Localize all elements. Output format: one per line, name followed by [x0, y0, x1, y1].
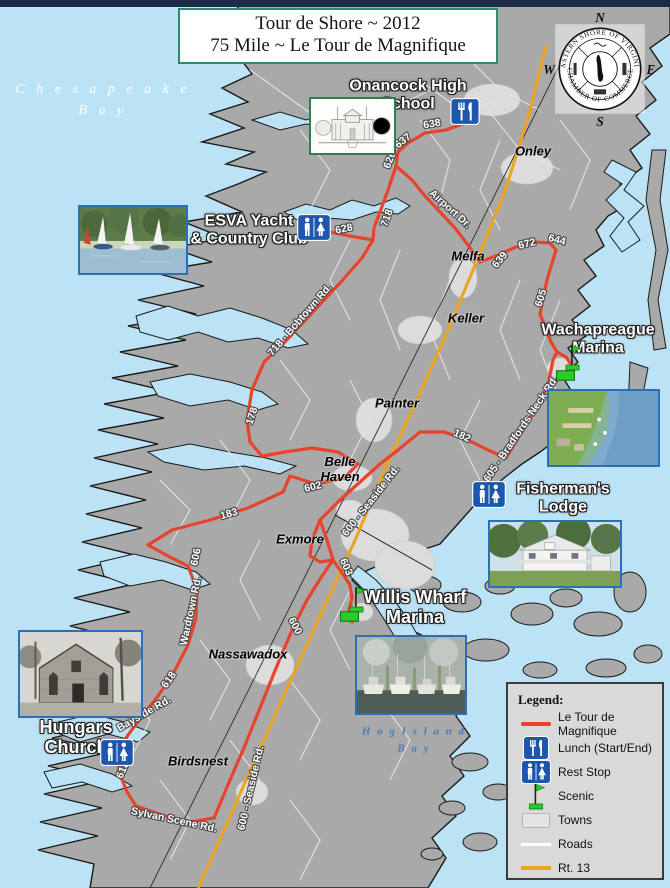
legend-item-rest: Rest Stop	[518, 760, 656, 784]
tour-de-shore-map-page: Tour de Shore ~ 2012 75 Mile ~ Le Tour d…	[0, 0, 670, 888]
legend-label: Towns	[554, 813, 592, 827]
legend-box: Legend: Le Tour de MagnifiqueLunch (Star…	[506, 682, 664, 880]
compass-e-label: E	[645, 62, 655, 77]
legend-flag-icon	[518, 782, 554, 810]
legend-item-town: Towns	[518, 808, 656, 832]
legend-item-route: Le Tour de Magnifique	[518, 712, 656, 736]
photo-hungars-church	[18, 630, 143, 718]
legend-label: Rest Stop	[554, 765, 611, 779]
legend-lunch-icon	[518, 736, 554, 760]
legend-rt13-icon	[518, 866, 554, 870]
legend-label: Scenic	[554, 789, 594, 803]
map-title-line2: 75 Mile ~ Le Tour de Magnifique	[180, 35, 496, 57]
map-title-line1: Tour de Shore ~ 2012	[180, 13, 496, 35]
legend-road-icon	[518, 843, 554, 846]
photo-willis-wharf-boats	[355, 635, 467, 715]
legend-item-lunch: Lunch (Start/End)	[518, 736, 656, 760]
photo-fishermans-lodge	[488, 520, 622, 588]
legend-label: Roads	[554, 837, 593, 851]
legend-item-flag: Scenic	[518, 784, 656, 808]
legend-label: Lunch (Start/End)	[554, 741, 652, 755]
legend-item-rt13: Rt. 13	[518, 856, 656, 880]
legend-title: Legend:	[518, 692, 656, 708]
chamber-of-commerce-logo: N W E S EASTERN SHORE OF VIRGINIA CHAMBE…	[541, 10, 659, 128]
compass-n-label: N	[594, 10, 605, 25]
legend-label: Le Tour de Magnifique	[554, 710, 656, 738]
compass-w-label: W	[543, 62, 556, 77]
map-title-box: Tour de Shore ~ 2012 75 Mile ~ Le Tour d…	[178, 8, 498, 64]
photo-sailboats	[78, 205, 188, 275]
legend-route-icon	[518, 722, 554, 726]
legend-town-icon	[518, 813, 554, 828]
compass-s-label: S	[596, 114, 603, 128]
photo-wachapreague-aerial	[547, 389, 660, 467]
legend-rest-icon	[518, 760, 554, 784]
legend-items: Le Tour de MagnifiqueLunch (Start/End)Re…	[518, 712, 656, 880]
legend-label: Rt. 13	[554, 861, 590, 875]
legend-item-road: Roads	[518, 832, 656, 856]
photo-onancock-school-sketch	[309, 97, 396, 155]
top-border-bar	[0, 0, 670, 7]
